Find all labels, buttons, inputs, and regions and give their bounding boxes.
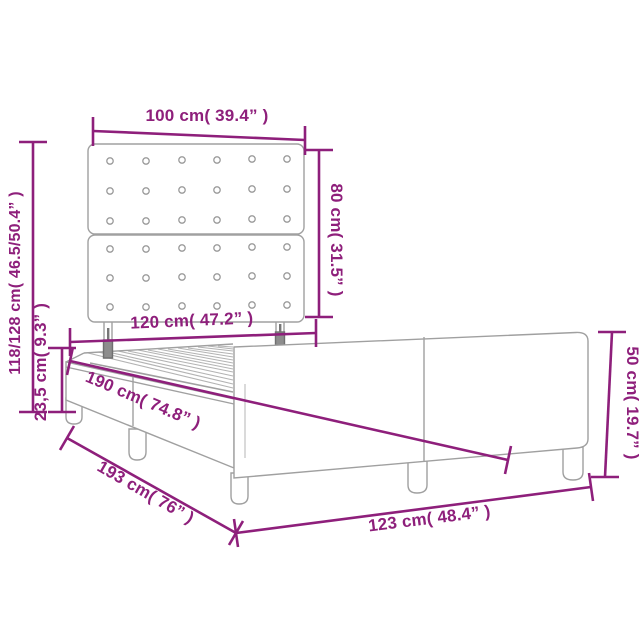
base-height-label: 23,5 cm( 9.3” ) xyxy=(31,303,50,421)
bed-leg xyxy=(408,460,427,493)
tuft-button xyxy=(249,273,255,279)
tuft-button xyxy=(214,274,220,280)
dim-tick xyxy=(60,426,74,450)
tuft-button xyxy=(179,303,185,309)
tuft-button xyxy=(179,157,185,163)
tuft-button xyxy=(214,245,220,251)
tuft-button xyxy=(249,156,255,162)
foot-height-label: 50 cm( 19.7” ) xyxy=(623,346,640,459)
tuft-button xyxy=(143,188,149,194)
tuft-button xyxy=(107,304,113,310)
diagram-canvas: 100 cm( 39.4” ) 80 cm( 31.5” ) 118/128 c… xyxy=(0,0,640,640)
tuft-button xyxy=(284,156,290,162)
tuft-button xyxy=(284,216,290,222)
overall-height-label: 118/128 cm( 46.5/50.4” ) xyxy=(7,191,24,375)
tuft-button xyxy=(143,218,149,224)
tuft-button xyxy=(214,187,220,193)
tuft-button xyxy=(284,302,290,308)
slat-width-label: 120 cm( 47.2” ) xyxy=(130,308,254,332)
tuft-button xyxy=(107,158,113,164)
tuft-button xyxy=(143,158,149,164)
bolt-pin-left xyxy=(107,328,109,341)
tuft-button xyxy=(107,275,113,281)
tuft-button xyxy=(179,217,185,223)
foot-panel xyxy=(234,332,588,478)
tuft-button xyxy=(214,157,220,163)
tuft-button xyxy=(249,244,255,250)
headboard-panel-lower xyxy=(88,235,304,322)
tuft-button xyxy=(284,273,290,279)
tuft-button xyxy=(143,304,149,310)
tuft-button xyxy=(249,186,255,192)
dim-line xyxy=(93,131,305,140)
bolt-base-left xyxy=(104,340,113,358)
tuft-button xyxy=(284,186,290,192)
tuft-button xyxy=(107,246,113,252)
headboard xyxy=(88,144,304,322)
headboard-height-label: 80 cm( 31.5” ) xyxy=(327,183,346,296)
bed-leg xyxy=(563,447,583,480)
tuft-button xyxy=(179,274,185,280)
slat-line xyxy=(218,346,233,347)
tuft-button xyxy=(143,275,149,281)
tuft-button xyxy=(107,218,113,224)
tuft-button xyxy=(214,217,220,223)
tuft-button xyxy=(143,246,149,252)
tuft-button xyxy=(179,187,185,193)
tuft-button xyxy=(179,245,185,251)
tuft-button xyxy=(249,216,255,222)
tuft-button xyxy=(249,302,255,308)
dim-foot-height xyxy=(591,332,626,477)
tuft-button xyxy=(214,303,220,309)
bed-dimension-diagram: 100 cm( 39.4” ) 80 cm( 31.5” ) 118/128 c… xyxy=(0,0,640,640)
dim-line xyxy=(605,332,612,477)
headboard-panel-upper xyxy=(88,144,304,234)
tuft-button xyxy=(107,188,113,194)
headboard-width-label: 100 cm( 39.4” ) xyxy=(145,106,268,125)
bed-leg xyxy=(129,429,146,460)
tuft-button xyxy=(284,244,290,250)
frame-length-label: 193 cm( 76” ) xyxy=(94,457,197,528)
